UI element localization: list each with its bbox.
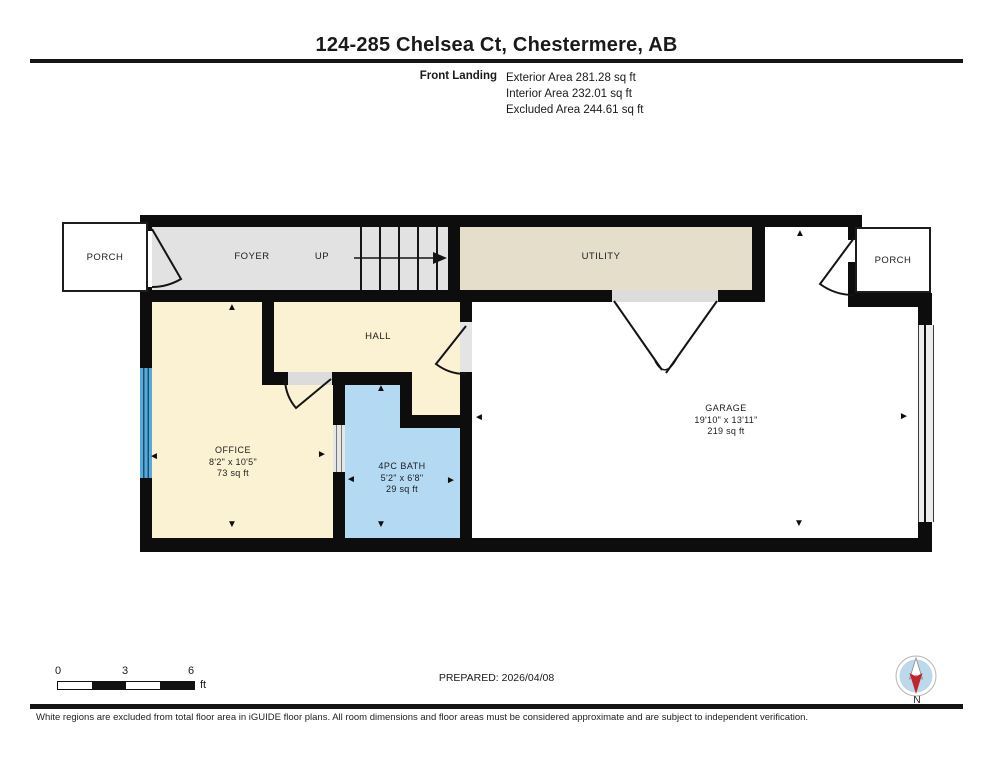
double-door-leaf — [614, 301, 662, 370]
double-door-arc — [655, 358, 677, 370]
dimension-arrow-up: ▲ — [795, 229, 805, 239]
room-label-bath: 4PC BATH 5'2" x 6'8" 29 sq ft — [378, 461, 425, 496]
bath-dims: 5'2" x 6'8" — [378, 473, 425, 485]
exterior-area: Exterior Area 281.28 sq ft — [506, 70, 643, 86]
room-hall-fill-extension — [412, 372, 460, 415]
door-opening — [460, 322, 472, 372]
interior-area: Interior Area 232.01 sq ft — [506, 86, 643, 102]
pocket-door-symbol — [333, 425, 345, 472]
garage-dims: 19'10" x 13'11" — [694, 415, 757, 427]
title-rule — [30, 59, 963, 63]
area-summary: Exterior Area 281.28 sq ft Interior Area… — [506, 70, 643, 118]
wall-segment — [460, 372, 472, 538]
page-title: 124-285 Chelsea Ct, Chestermere, AB — [0, 34, 993, 57]
wall-segment — [918, 522, 932, 538]
stair-tread — [417, 227, 419, 290]
dimension-arrow-down: ▼ — [376, 520, 386, 530]
door-opening — [288, 372, 332, 385]
wall-segment — [140, 290, 612, 302]
garage-name: GARAGE — [694, 403, 757, 415]
prepared-date: PREPARED: 2026/04/08 — [0, 672, 993, 684]
wall-segment — [460, 290, 472, 322]
dimension-arrow-up: ▲ — [227, 303, 237, 313]
wall-segment — [752, 215, 765, 302]
wall-segment — [333, 384, 345, 425]
bath-name: 4PC BATH — [378, 461, 425, 473]
office-dims: 8'2" x 10'5" — [209, 457, 257, 469]
room-label-office: OFFICE 8'2" x 10'5" 73 sq ft — [209, 445, 257, 480]
footer-rule — [30, 704, 963, 709]
floor-label: Front Landing — [0, 70, 497, 82]
bath-area: 29 sq ft — [378, 484, 425, 496]
stair-tread — [379, 227, 381, 290]
dimension-arrow-left: ◄ — [346, 475, 356, 485]
wall-segment — [333, 472, 345, 538]
garage-area: 219 sq ft — [694, 426, 757, 438]
floor-plan-page: 124-285 Chelsea Ct, Chestermere, AB Fron… — [0, 0, 993, 768]
stair-tread — [360, 227, 362, 290]
office-area: 73 sq ft — [209, 468, 257, 480]
stair-tread — [436, 227, 438, 290]
porch-left: PORCH — [62, 222, 148, 292]
room-label-utility: UTILITY — [582, 251, 621, 262]
office-name: OFFICE — [209, 445, 257, 457]
porch-right: PORCH — [855, 227, 931, 293]
dimension-arrow-right: ► — [317, 450, 327, 460]
dimension-arrow-left: ◄ — [474, 413, 484, 423]
room-label-up: UP — [315, 251, 329, 262]
dimension-arrow-down: ▼ — [227, 520, 237, 530]
porch-right-label: PORCH — [875, 255, 912, 266]
stair-tread — [398, 227, 400, 290]
disclaimer-text: White regions are excluded from total fl… — [36, 712, 956, 723]
room-label-foyer: FOYER — [234, 251, 269, 262]
wall-segment — [140, 538, 932, 552]
door-opening — [612, 290, 718, 302]
dimension-arrow-right: ► — [899, 412, 909, 422]
wall-segment — [262, 372, 288, 385]
room-bath-fill-upper — [345, 385, 400, 428]
room-label-hall: HALL — [365, 331, 391, 342]
dimension-arrow-left: ◄ — [149, 452, 159, 462]
dimension-arrow-down: ▼ — [794, 519, 804, 529]
wall-segment — [448, 215, 460, 302]
dimension-arrow-right: ► — [446, 476, 456, 486]
dimension-arrow-up: ▲ — [376, 384, 386, 394]
garage-door-symbol — [918, 325, 934, 522]
double-door-leaf — [666, 301, 717, 373]
wall-segment — [918, 305, 932, 325]
porch-left-label: PORCH — [87, 252, 124, 263]
room-label-garage: GARAGE 19'10" x 13'11" 219 sq ft — [694, 403, 757, 438]
excluded-area: Excluded Area 244.61 sq ft — [506, 102, 643, 118]
room-office-fill-upper — [152, 302, 262, 384]
